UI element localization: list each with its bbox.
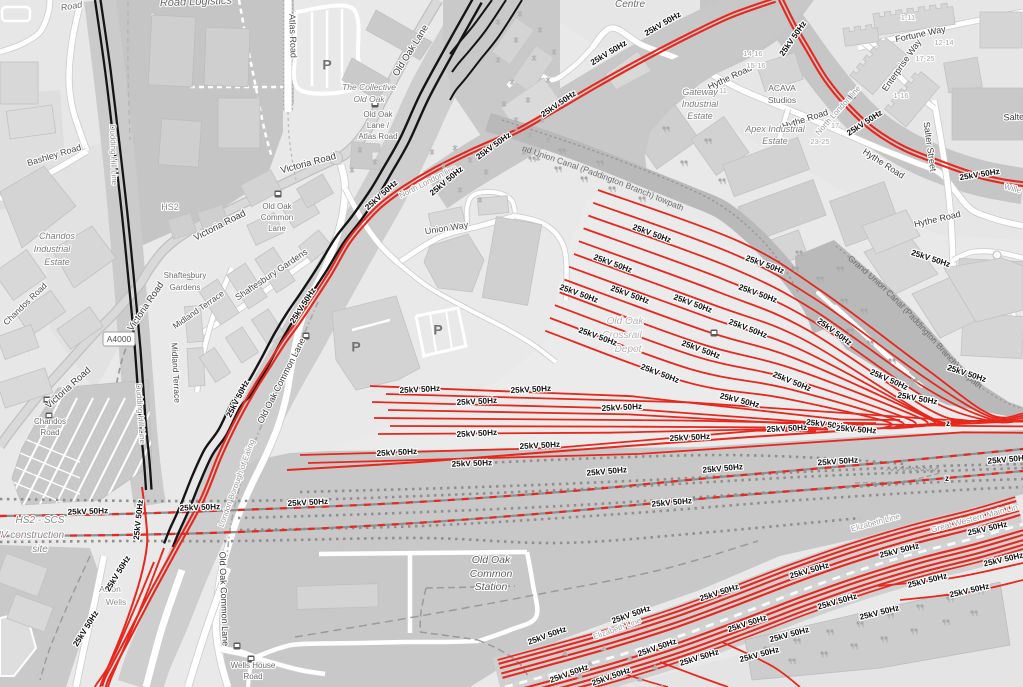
svg-text:Gateway: Gateway — [682, 87, 718, 97]
svg-text:Atlas Road: Atlas Road — [358, 132, 397, 141]
svg-text:11: 11 — [719, 86, 727, 95]
svg-text:Old Oak: Old Oak — [363, 110, 393, 119]
svg-text:HS2: HS2 — [161, 202, 179, 212]
svg-text:Apex Industrial: Apex Industrial — [744, 124, 806, 134]
svg-text:Chandos: Chandos — [34, 417, 66, 426]
svg-text:Salte: Salte — [1003, 111, 1023, 122]
svg-text:Old Oak: Old Oak — [472, 554, 511, 566]
svg-text:Industrial: Industrial — [682, 99, 720, 109]
svg-text:12-14: 12-14 — [934, 38, 953, 47]
svg-text:17: 17 — [831, 121, 839, 130]
svg-text:Lane: Lane — [268, 224, 286, 233]
svg-text:Road: Road — [243, 672, 262, 681]
svg-text:Chandos: Chandos — [39, 231, 76, 241]
svg-text:P: P — [322, 57, 331, 73]
svg-text:23-25: 23-25 — [810, 137, 829, 146]
svg-text:Common: Common — [261, 213, 293, 222]
svg-text:Road: Road — [40, 428, 59, 437]
svg-text:Wells: Wells — [106, 597, 127, 607]
svg-text:site: site — [32, 544, 48, 555]
svg-text:HS2 - SCS: HS2 - SCS — [16, 515, 65, 526]
svg-text:Old Oak: Old Oak — [607, 316, 645, 327]
svg-text:Old Oak: Old Oak — [262, 202, 292, 211]
svg-text:A4000: A4000 — [107, 334, 132, 344]
svg-text:z: z — [946, 419, 950, 428]
svg-text:Common: Common — [470, 568, 513, 580]
svg-text:Gardens: Gardens — [170, 283, 201, 292]
svg-text:Station: Station — [475, 581, 508, 593]
svg-text:Depot: Depot — [615, 344, 643, 355]
svg-text:ACAVA: ACAVA — [768, 83, 796, 93]
svg-text:17-25: 17-25 — [915, 54, 934, 63]
svg-text:Lane /: Lane / — [367, 121, 390, 130]
svg-text:P: P — [433, 322, 442, 338]
svg-text:Shaftesbury: Shaftesbury — [164, 271, 207, 280]
svg-text:1-11: 1-11 — [901, 13, 915, 22]
svg-text:25kV 50Hz: 25kV 50Hz — [68, 506, 109, 516]
svg-text:Centre: Centre — [615, 0, 645, 10]
svg-text:14-16: 14-16 — [743, 49, 762, 58]
svg-text:Atlas Road: Atlas Road — [287, 14, 299, 58]
svg-text:Wells House: Wells House — [231, 661, 276, 670]
svg-text:The Collective: The Collective — [342, 82, 396, 92]
svg-text:1-16: 1-16 — [893, 91, 908, 100]
svg-text:Old Oak: Old Oak — [353, 94, 385, 104]
svg-text:Estate: Estate — [44, 257, 70, 267]
svg-text:JV construction: JV construction — [0, 530, 65, 541]
svg-text:z: z — [945, 474, 949, 483]
svg-text:15-16: 15-16 — [746, 61, 765, 70]
svg-text:Industrial: Industrial — [34, 244, 72, 254]
svg-text:Estate: Estate — [762, 136, 788, 146]
svg-text:Studios: Studios — [768, 95, 796, 105]
svg-text:Estate: Estate — [687, 111, 713, 121]
svg-text:25kV 50Hz: 25kV 50Hz — [180, 502, 221, 512]
svg-text:25kV 50Hz: 25kV 50Hz — [452, 458, 493, 468]
svg-text:P: P — [351, 339, 360, 355]
